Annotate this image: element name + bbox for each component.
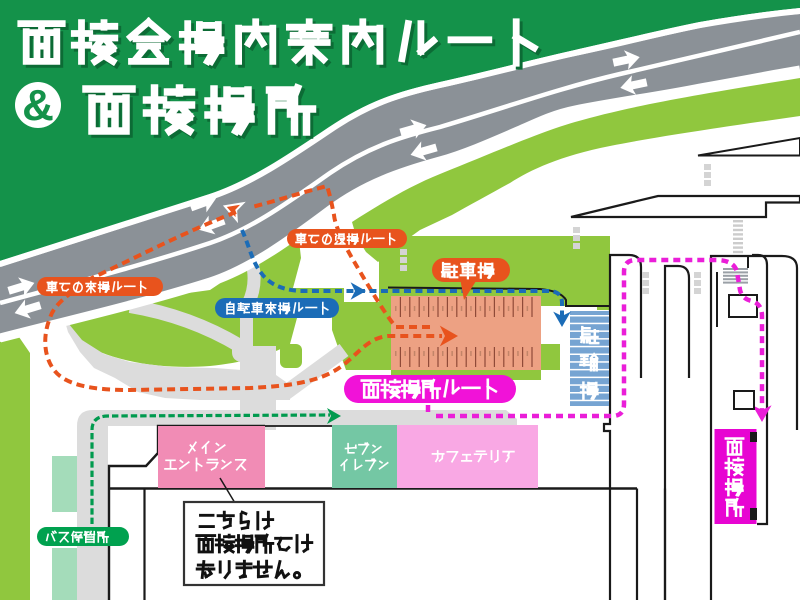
svg-text:&: & — [22, 81, 54, 130]
